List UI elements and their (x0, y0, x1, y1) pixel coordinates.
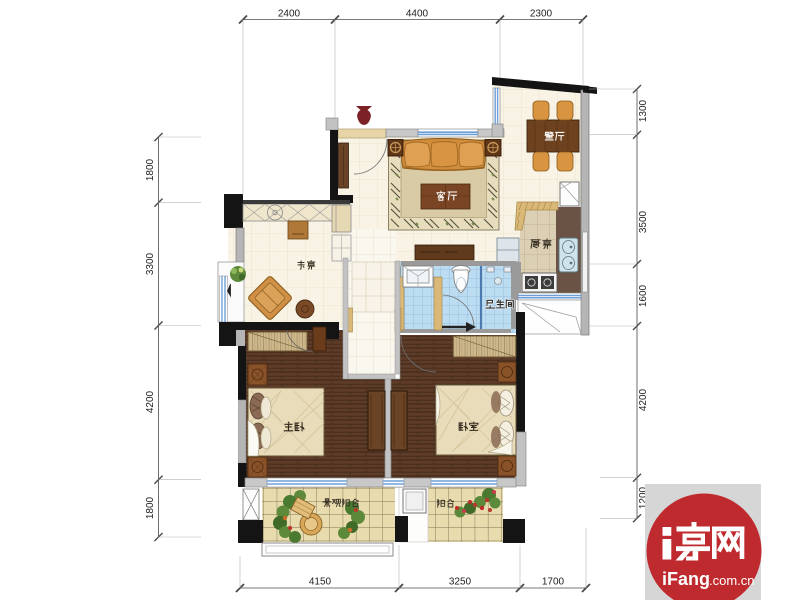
svg-text:1600: 1600 (638, 284, 649, 307)
svg-text:4150: 4150 (309, 577, 332, 588)
svg-text:4400: 4400 (406, 9, 429, 20)
svg-text:2300: 2300 (530, 9, 553, 20)
svg-text:1800: 1800 (145, 158, 156, 181)
svg-text:3250: 3250 (449, 577, 472, 588)
svg-text:1700: 1700 (542, 577, 565, 588)
svg-text:3300: 3300 (145, 252, 156, 275)
svg-text:.com.cn: .com.cn (709, 573, 755, 588)
svg-text:3500: 3500 (638, 210, 649, 233)
svg-text:1300: 1300 (638, 99, 649, 122)
svg-text:1800: 1800 (145, 496, 156, 519)
svg-text:4200: 4200 (638, 388, 649, 411)
svg-text:iFang: iFang (662, 569, 710, 589)
svg-text:4200: 4200 (145, 390, 156, 413)
svg-text:2400: 2400 (278, 9, 301, 20)
